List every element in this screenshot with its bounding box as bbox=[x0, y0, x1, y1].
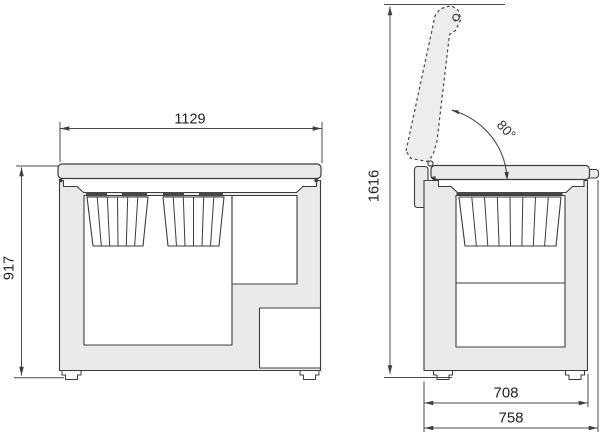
technical-drawing-canvas: 1129 917 bbox=[0, 0, 600, 437]
dim-side-depth-body-label: 708 bbox=[493, 385, 518, 402]
front-inner-cavity-right bbox=[232, 196, 297, 285]
dim-front-height-label: 917 bbox=[2, 256, 18, 280]
front-foot-left bbox=[62, 371, 81, 380]
side-lid-closed bbox=[431, 166, 590, 180]
front-basket-left bbox=[87, 197, 148, 246]
side-lid-open bbox=[406, 6, 461, 162]
lid-angle-label: 80° bbox=[494, 117, 519, 142]
dim-front-height: 917 bbox=[2, 166, 65, 378]
side-foot-front bbox=[434, 371, 453, 380]
side-hinge-pin bbox=[433, 177, 436, 180]
front-hinge-pin-left bbox=[59, 179, 62, 182]
side-hinge-pivot bbox=[428, 161, 433, 166]
dim-side-open-height-label: 1616 bbox=[367, 170, 383, 202]
dim-side-depth-overall-label: 758 bbox=[498, 410, 523, 427]
angle-arc-arrow-up bbox=[451, 110, 459, 114]
dim-front-width-label: 1129 bbox=[174, 112, 205, 128]
dim-front-width: 1129 bbox=[60, 112, 322, 164]
front-lid bbox=[58, 164, 321, 179]
front-compressor-niche bbox=[260, 308, 321, 368]
front-hinge-pin-right bbox=[315, 179, 318, 182]
side-foot-rear bbox=[566, 371, 585, 380]
lid-lock-pin bbox=[454, 19, 456, 21]
freezer-dimension-drawing: 1129 917 bbox=[0, 0, 600, 437]
front-basket-right bbox=[163, 197, 224, 246]
front-view bbox=[58, 164, 321, 380]
side-basket bbox=[459, 197, 561, 246]
side-view: 80° bbox=[384, 5, 599, 380]
front-foot-right bbox=[300, 371, 319, 380]
